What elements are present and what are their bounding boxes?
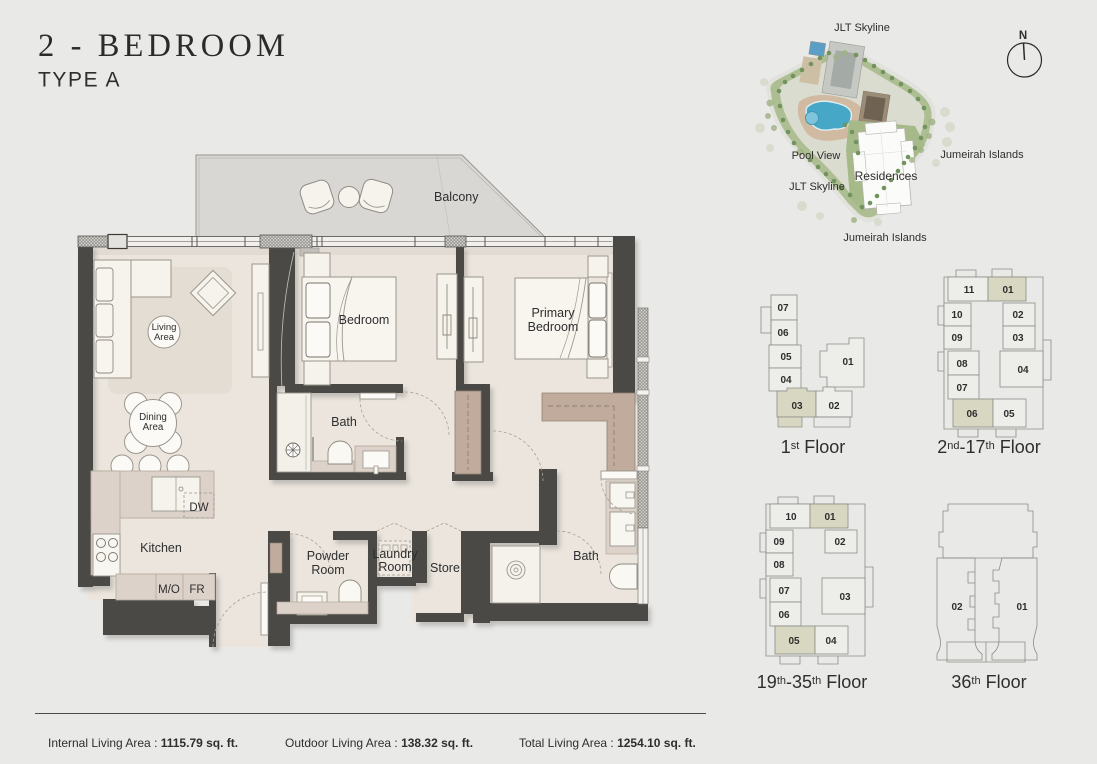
svg-text:01: 01 [842, 357, 854, 368]
svg-text:01: 01 [1016, 602, 1028, 613]
svg-text:Store: Store [430, 561, 460, 575]
svg-text:Jumeirah Islands: Jumeirah Islands [940, 149, 1024, 161]
svg-text:06: 06 [777, 328, 789, 339]
svg-text:DW: DW [189, 502, 208, 514]
svg-text:Pool View: Pool View [792, 150, 841, 162]
svg-text:Internal Living Area : 1115.79: Internal Living Area : 1115.79 sq. ft. [48, 736, 238, 750]
svg-text:Jumeirah Islands: Jumeirah Islands [843, 232, 927, 244]
svg-text:Area: Area [143, 422, 164, 433]
svg-text:Room: Room [378, 560, 411, 574]
svg-text:02: 02 [951, 602, 963, 613]
svg-text:Bath: Bath [573, 549, 599, 563]
svg-text:Kitchen: Kitchen [140, 541, 182, 555]
svg-text:09: 09 [773, 537, 785, 548]
svg-text:Laundry: Laundry [372, 547, 418, 561]
svg-text:03: 03 [1012, 333, 1024, 344]
svg-text:Primary: Primary [531, 306, 575, 320]
svg-text:04: 04 [780, 375, 792, 386]
svg-text:1st Floor: 1st Floor [781, 437, 846, 457]
svg-text:04: 04 [1017, 365, 1029, 376]
svg-text:Residences: Residences [855, 169, 918, 183]
svg-text:Powder: Powder [307, 549, 349, 563]
svg-text:M/O: M/O [158, 584, 180, 596]
svg-text:06: 06 [778, 610, 790, 621]
svg-text:01: 01 [1002, 285, 1014, 296]
svg-text:Bedroom: Bedroom [528, 320, 579, 334]
svg-text:TYPE A: TYPE A [38, 69, 121, 92]
svg-text:Outdoor Living Area : 138.32 s: Outdoor Living Area : 138.32 sq. ft. [285, 736, 473, 750]
svg-text:03: 03 [839, 592, 851, 603]
svg-text:FR: FR [189, 584, 204, 596]
svg-text:2 - BEDROOM: 2 - BEDROOM [38, 28, 289, 64]
svg-text:02: 02 [834, 537, 846, 548]
svg-text:05: 05 [780, 352, 792, 363]
svg-text:Bath: Bath [331, 415, 357, 429]
svg-text:10: 10 [951, 310, 963, 321]
svg-text:Area: Area [154, 332, 175, 343]
svg-text:Balcony: Balcony [434, 190, 479, 204]
svg-text:07: 07 [956, 383, 968, 394]
svg-text:N: N [1019, 30, 1027, 42]
svg-text:19th-35th Floor: 19th-35th Floor [757, 672, 867, 692]
svg-text:05: 05 [1003, 409, 1015, 420]
svg-text:05: 05 [788, 636, 800, 647]
svg-text:JLT Skyline: JLT Skyline [789, 181, 845, 193]
svg-text:02: 02 [1012, 310, 1024, 321]
svg-text:07: 07 [778, 586, 790, 597]
svg-text:10: 10 [785, 512, 797, 523]
svg-text:02: 02 [828, 401, 840, 412]
svg-text:Room: Room [311, 563, 344, 577]
svg-text:08: 08 [773, 560, 785, 571]
svg-text:06: 06 [966, 409, 978, 420]
svg-text:09: 09 [951, 333, 963, 344]
svg-text:Total Living Area : 1254.10 sq: Total Living Area : 1254.10 sq. ft. [519, 736, 696, 750]
svg-text:04: 04 [825, 636, 837, 647]
svg-text:07: 07 [777, 303, 789, 314]
svg-text:01: 01 [824, 512, 836, 523]
svg-text:08: 08 [956, 359, 968, 370]
svg-text:36th Floor: 36th Floor [951, 672, 1026, 692]
svg-text:11: 11 [964, 285, 975, 296]
svg-text:JLT Skyline: JLT Skyline [834, 22, 890, 34]
svg-text:03: 03 [791, 401, 803, 412]
svg-text:Bedroom: Bedroom [339, 313, 390, 327]
